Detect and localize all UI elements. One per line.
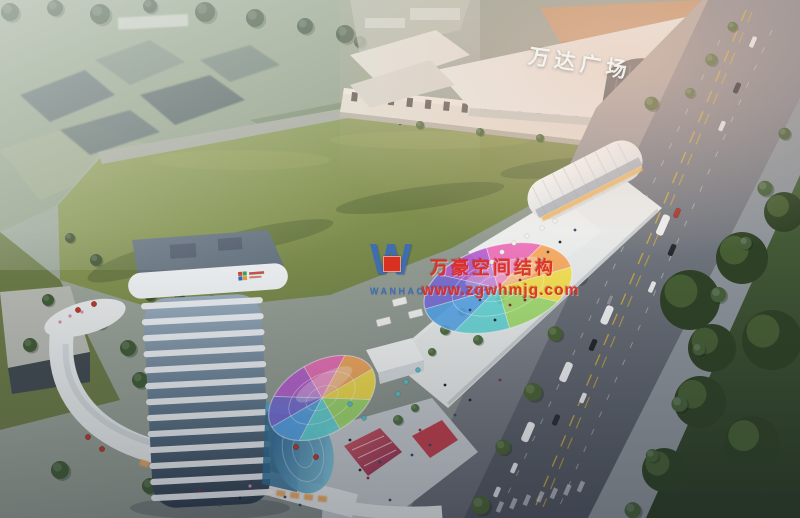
aerial-render: 万达广场 W WANHAO 万豪空间结构 www.zgwhmjg.com — [0, 0, 800, 518]
watermark-company: 万豪空间结构 — [430, 254, 556, 280]
watermark-website: www.zgwhmjg.com — [422, 282, 579, 300]
watermark-logo: W WANHAO — [366, 246, 428, 308]
watermark: W WANHAO 万豪空间结构 www.zgwhmjg.com — [366, 246, 581, 312]
pink-haze — [340, 0, 800, 260]
watermark-logo-mark — [383, 256, 401, 272]
